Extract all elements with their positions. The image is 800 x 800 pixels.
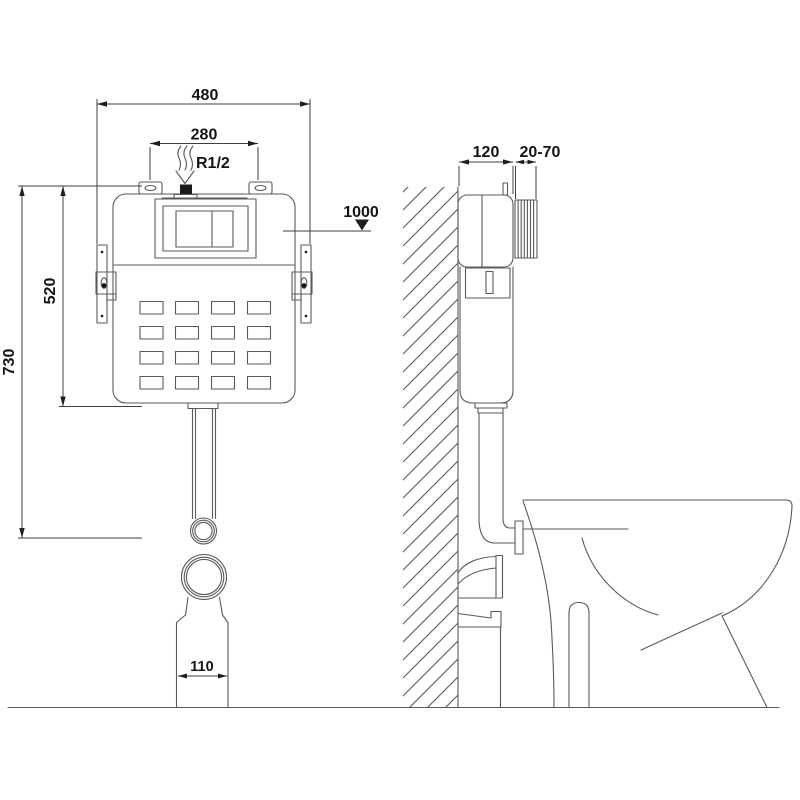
- bracket-step: [292, 294, 301, 300]
- mounting-tab-right: [249, 182, 272, 194]
- outlet-elbow-ring: [184, 557, 224, 597]
- bracket-screw-hole: [101, 315, 104, 318]
- hatch-lines: [403, 137, 458, 768]
- dim-20-70: 20-70: [516, 144, 561, 199]
- emboss-cell: [140, 302, 163, 315]
- emboss-cell: [212, 327, 235, 340]
- installation-drawing: R1/2: [0, 0, 800, 800]
- emboss-cell: [212, 352, 235, 365]
- emboss-cell: [248, 327, 271, 340]
- emboss-cell: [176, 302, 199, 315]
- front-view: R1/2: [1, 87, 379, 707]
- arrowhead: [97, 101, 107, 106]
- inlet-thread-label: R1/2: [196, 155, 230, 172]
- outlet-elbow-ring: [186, 559, 221, 594]
- arrowhead: [60, 186, 65, 196]
- pipe-coupling-ring: [193, 520, 215, 542]
- tab-plate: [249, 182, 272, 194]
- emboss-cell: [212, 302, 235, 315]
- adjustment-spacer: [515, 200, 537, 258]
- bracket-pin: [102, 283, 107, 288]
- bracket-screw-hole: [101, 251, 104, 254]
- bowl-underside-line: [641, 613, 722, 650]
- elbow-outer-arc: [458, 557, 496, 574]
- pipe-flange: [188, 403, 218, 409]
- flush-buttons: [176, 211, 233, 247]
- bracket-screw-hole: [305, 315, 308, 318]
- bowl-inlet-socket: [515, 521, 523, 554]
- emboss-cell: [140, 352, 163, 365]
- arrowhead: [19, 528, 24, 538]
- arrowhead: [218, 674, 227, 679]
- arrowhead: [503, 159, 513, 164]
- emboss-cell: [212, 377, 235, 390]
- inlet-base: [174, 195, 197, 199]
- dim-120-label: 120: [473, 144, 500, 161]
- dim-120: 120: [459, 144, 513, 194]
- overflow-pipe-top: [503, 183, 508, 195]
- emboss-cell: [176, 377, 199, 390]
- level-mark-1000: 1000: [283, 204, 379, 231]
- emboss-cell: [140, 327, 163, 340]
- pipe-coupling-ring: [195, 522, 212, 539]
- pipe-flange-side: [475, 403, 507, 408]
- level-1000-label: 1000: [343, 204, 379, 221]
- steam-line-icon: [190, 146, 193, 170]
- bowl-inner-curve: [582, 538, 658, 615]
- cistern-side-body: [458, 195, 513, 267]
- spacer-hatch: [518, 200, 534, 258]
- emboss-cell: [176, 327, 199, 340]
- bracket-screw-hole: [305, 251, 308, 254]
- cistern-body: [113, 194, 295, 403]
- outlet-elbow-ring: [182, 555, 227, 600]
- elbow-inner-arc: [458, 568, 496, 584]
- waste-elbow: [458, 556, 503, 599]
- dim-20-70-label: 20-70: [520, 144, 561, 161]
- arrowhead: [178, 674, 187, 679]
- water-inlet: [174, 146, 197, 198]
- trap-outline: [569, 603, 589, 708]
- dim-520-label: 520: [42, 278, 59, 305]
- dim-520: 520: [42, 186, 142, 407]
- mounting-tab-left: [139, 182, 162, 194]
- access-frame-slot: [486, 272, 493, 294]
- bowl-outer-curve: [722, 506, 792, 616]
- side-view: 120 20-70: [403, 137, 792, 768]
- dim-110-label: 110: [190, 659, 213, 675]
- toilet-bowl: [523, 500, 792, 708]
- bracket-pin: [302, 283, 307, 288]
- wall-hatch: [403, 137, 458, 768]
- emboss-cell: [140, 377, 163, 390]
- emboss-grid: [140, 302, 271, 390]
- steam-line-icon: [184, 146, 187, 170]
- inlet-arrow-icon: [176, 171, 194, 184]
- tab-slot: [145, 186, 156, 191]
- bowl-front-curve: [523, 501, 554, 708]
- arrowhead: [248, 141, 258, 146]
- bowl-rim-line: [523, 500, 792, 506]
- tab-plate: [139, 182, 162, 194]
- arrowhead: [300, 101, 310, 106]
- flush-plate-frame-outer: [155, 199, 256, 258]
- tab-slot: [255, 186, 266, 191]
- flush-pipe-side: [479, 413, 515, 543]
- floor-support-wedge: [458, 612, 501, 628]
- level-triangle-icon: [355, 220, 369, 231]
- emboss-cell: [176, 352, 199, 365]
- emboss-cell: [248, 377, 271, 390]
- emboss-cell: [248, 352, 271, 365]
- dim-730: 730: [1, 186, 142, 538]
- pedestal-edge: [722, 616, 767, 708]
- bracket-step: [107, 294, 116, 300]
- dim-110: 110: [178, 659, 227, 679]
- dim-280-label: 280: [191, 127, 218, 144]
- dim-480-label: 480: [192, 87, 219, 104]
- elbow-flange: [496, 556, 503, 599]
- pipe-flange-side: [478, 408, 503, 413]
- steam-line-icon: [178, 146, 181, 170]
- arrowhead: [150, 141, 160, 146]
- arrowhead: [459, 159, 469, 164]
- arrowhead: [60, 397, 65, 407]
- outlet-column: [177, 598, 229, 708]
- arrowhead: [19, 186, 24, 196]
- dim-730-label: 730: [1, 349, 18, 376]
- emboss-cell: [248, 302, 271, 315]
- inlet-fitting: [180, 185, 192, 195]
